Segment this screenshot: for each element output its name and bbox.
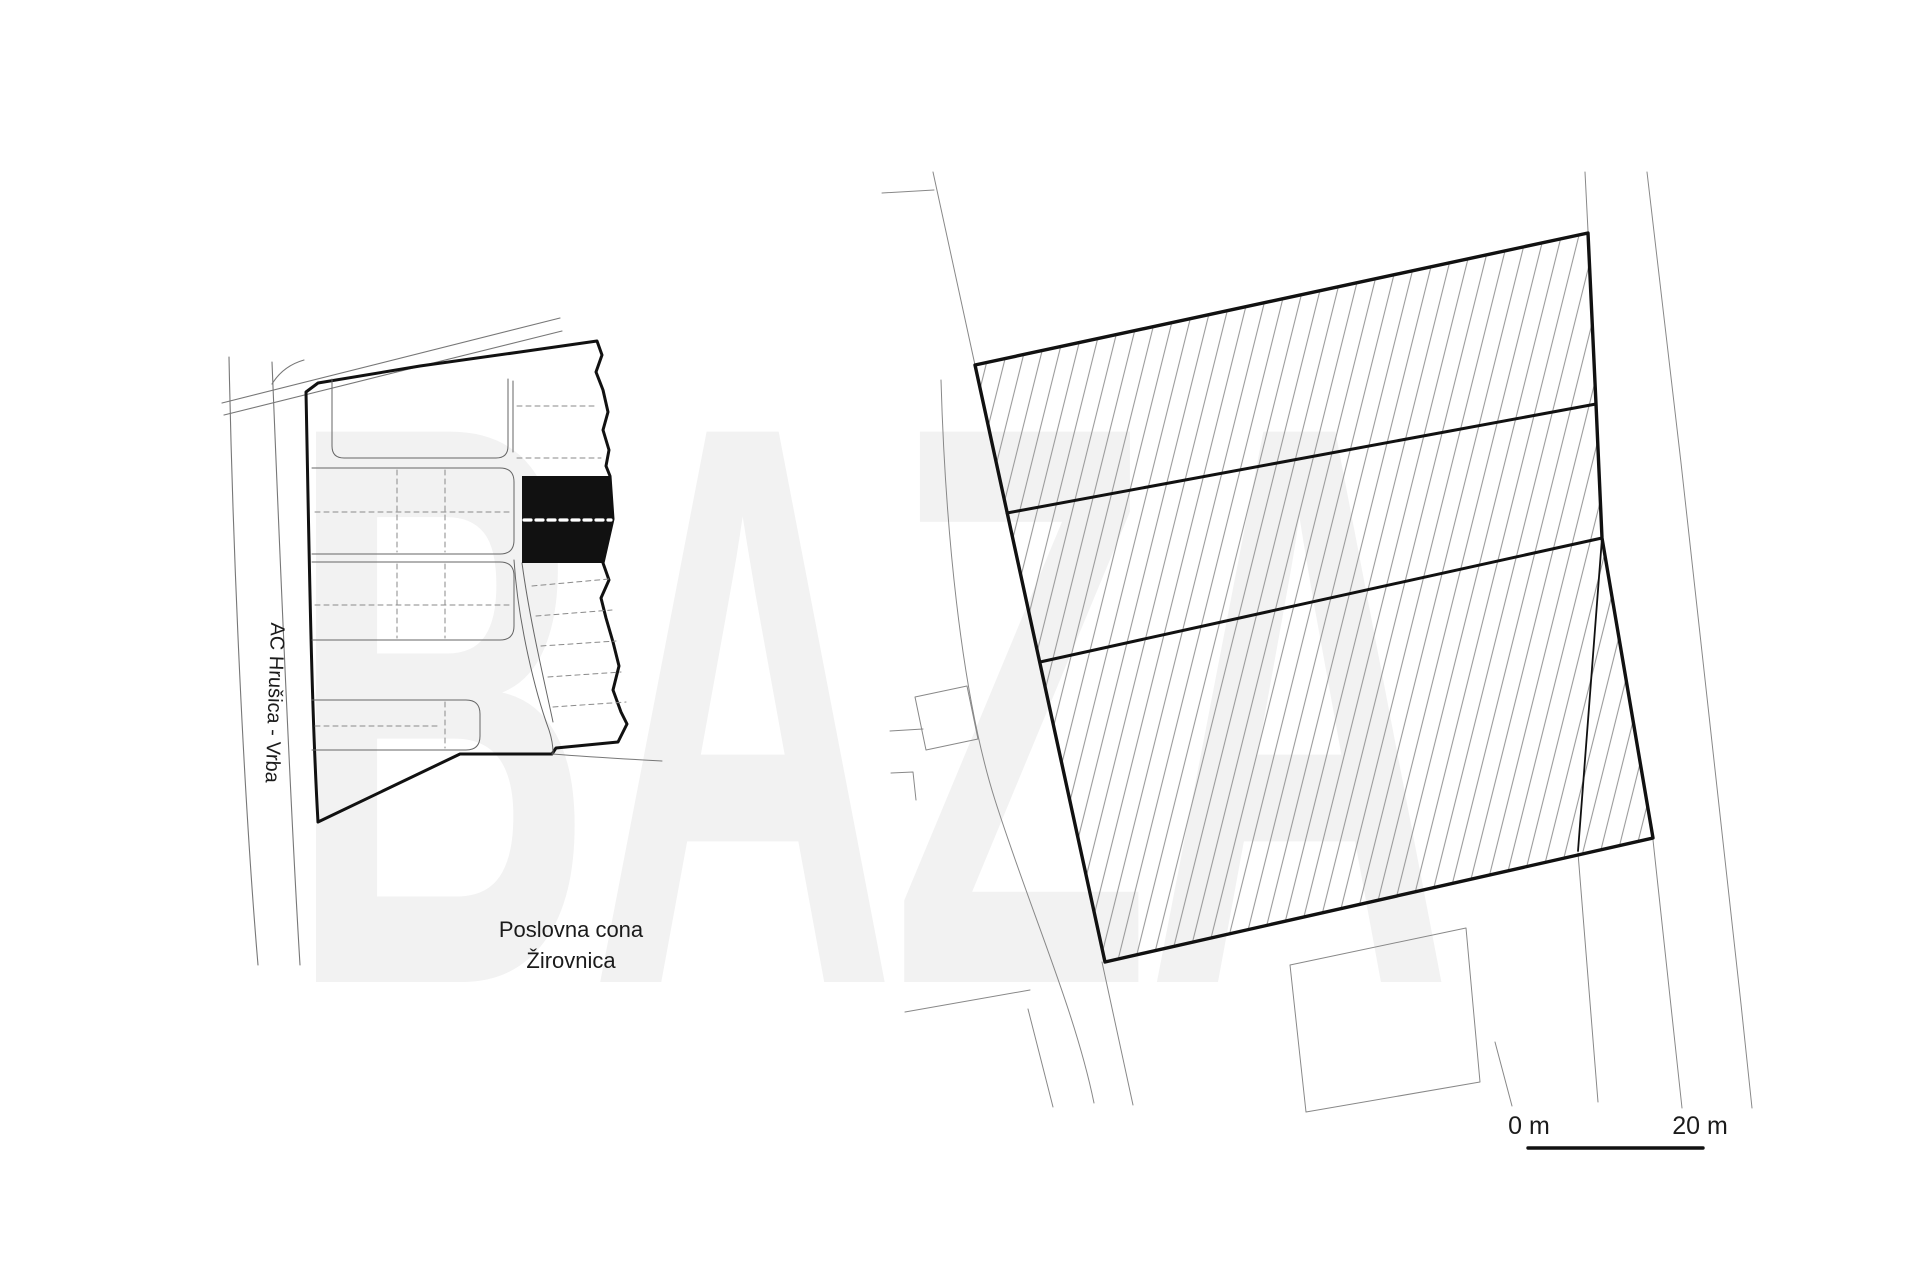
zone-label: Poslovna cona Žirovnica	[471, 914, 671, 976]
boundary-extension-line	[552, 754, 662, 761]
scale-bar-start-label: 0 m	[1484, 1112, 1574, 1141]
site-plan-canvas	[0, 0, 1920, 1280]
scale-bar-end-label: 20 m	[1655, 1112, 1745, 1141]
zone-label-line2: Žirovnica	[471, 945, 671, 976]
drawing-sheet: BAZA	[0, 0, 1920, 1280]
hatched-parcel	[975, 233, 1653, 962]
parcel-outline	[975, 233, 1653, 962]
building-footprint	[915, 686, 978, 750]
subdivision-dashed-lines	[315, 406, 626, 748]
plot-rectangle	[1290, 928, 1480, 1112]
highlighted-parcel	[522, 476, 613, 563]
location-map	[222, 318, 662, 965]
zone-label-line1: Poslovna cona	[471, 914, 671, 945]
inner-parcels	[312, 379, 553, 753]
detail-plan	[882, 172, 1752, 1148]
